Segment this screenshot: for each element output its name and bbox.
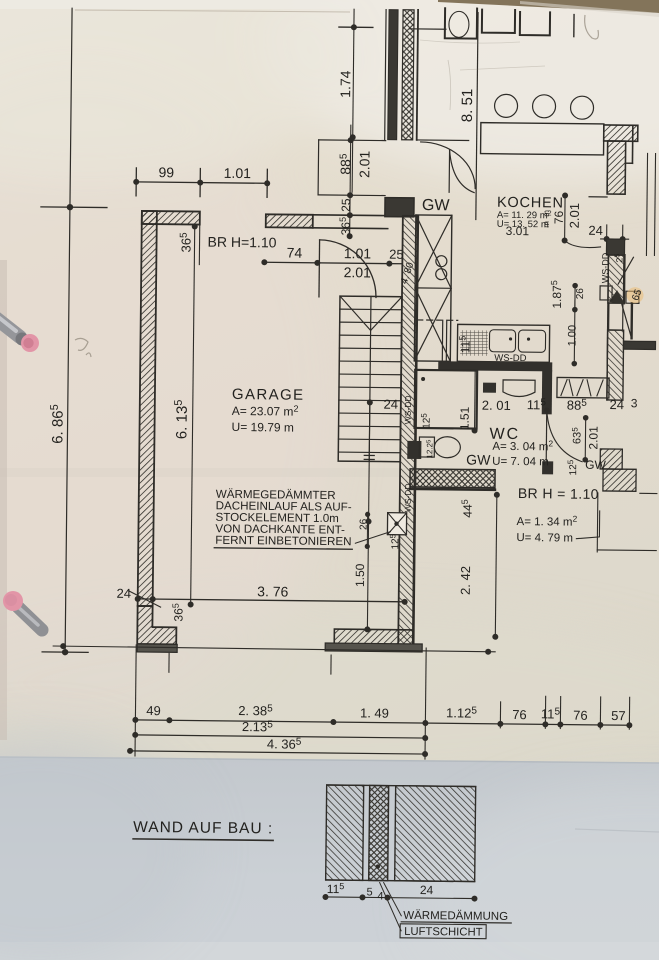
svg-text:WS-DD: WS-DD xyxy=(403,395,413,424)
svg-text:26: 26 xyxy=(575,288,586,300)
svg-text:1. 49: 1. 49 xyxy=(360,705,389,720)
svg-text:8. 51: 8. 51 xyxy=(459,89,476,123)
svg-text:GARAGE: GARAGE xyxy=(232,386,305,404)
svg-text:2.01: 2.01 xyxy=(356,150,372,178)
svg-text:26: 26 xyxy=(358,518,369,530)
svg-text:25: 25 xyxy=(389,247,404,262)
svg-text:3.01: 3.01 xyxy=(506,224,530,238)
svg-text:24: 24 xyxy=(610,397,625,412)
svg-text:GW: GW xyxy=(466,451,491,467)
svg-text:2.01: 2.01 xyxy=(567,203,582,228)
svg-text:2. 01: 2. 01 xyxy=(482,398,511,413)
svg-text:2.01: 2.01 xyxy=(344,264,372,280)
svg-text:WS-DD: WS-DD xyxy=(600,252,610,283)
svg-text:24: 24 xyxy=(116,586,131,601)
svg-text:76: 76 xyxy=(552,210,566,224)
svg-text:m: m xyxy=(542,210,551,217)
svg-text:24: 24 xyxy=(588,223,603,238)
svg-text:WAND AUF BAU :: WAND AUF BAU : xyxy=(133,819,273,838)
svg-text:3. 76: 3. 76 xyxy=(257,583,289,599)
svg-text:1.74: 1.74 xyxy=(337,70,353,98)
svg-text:U= 4. 79 m: U= 4. 79 m xyxy=(516,532,573,545)
svg-text:A= 23.07 m2: A= 23.07 m2 xyxy=(232,403,299,419)
svg-text:5: 5 xyxy=(366,886,372,898)
svg-text:25: 25 xyxy=(339,198,353,212)
svg-text:1.50: 1.50 xyxy=(353,563,367,587)
svg-text:U= 19.79 m: U= 19.79 m xyxy=(231,420,294,435)
svg-text:4: 4 xyxy=(377,891,383,903)
svg-text:99: 99 xyxy=(158,164,174,180)
svg-text:1.01: 1.01 xyxy=(344,245,372,261)
svg-text:U= 7. 04 m: U= 7. 04 m xyxy=(492,456,549,469)
svg-text:GW: GW xyxy=(422,197,451,214)
svg-text:LUFTSCHICHT: LUFTSCHICHT xyxy=(404,926,483,939)
svg-text:76: 76 xyxy=(573,708,588,723)
svg-text:1.01: 1.01 xyxy=(224,165,252,181)
svg-text:1.51: 1.51 xyxy=(458,406,472,430)
svg-text:2.01: 2.01 xyxy=(586,426,600,450)
svg-text:76: 76 xyxy=(512,707,527,722)
svg-text:24: 24 xyxy=(384,397,399,412)
svg-text:WS-DD: WS-DD xyxy=(403,483,413,512)
svg-text:BR H = 1.10: BR H = 1.10 xyxy=(518,485,599,502)
svg-text:1.00: 1.00 xyxy=(566,325,578,347)
svg-text:FERNT EINBETONIEREN: FERNT EINBETONIEREN xyxy=(215,534,351,548)
svg-text:GW: GW xyxy=(585,458,606,472)
svg-text:WS-DD: WS-DD xyxy=(494,353,526,364)
svg-text:3: 3 xyxy=(631,396,638,410)
svg-text:57: 57 xyxy=(611,708,626,723)
svg-text:BR H=1.10: BR H=1.10 xyxy=(207,234,276,251)
svg-text:WÄRMEDÄMMUNG: WÄRMEDÄMMUNG xyxy=(403,910,508,923)
svg-text:2. 42: 2. 42 xyxy=(458,566,473,595)
svg-text:74: 74 xyxy=(287,245,303,261)
svg-text:49: 49 xyxy=(146,703,161,718)
svg-text:24: 24 xyxy=(420,883,434,897)
